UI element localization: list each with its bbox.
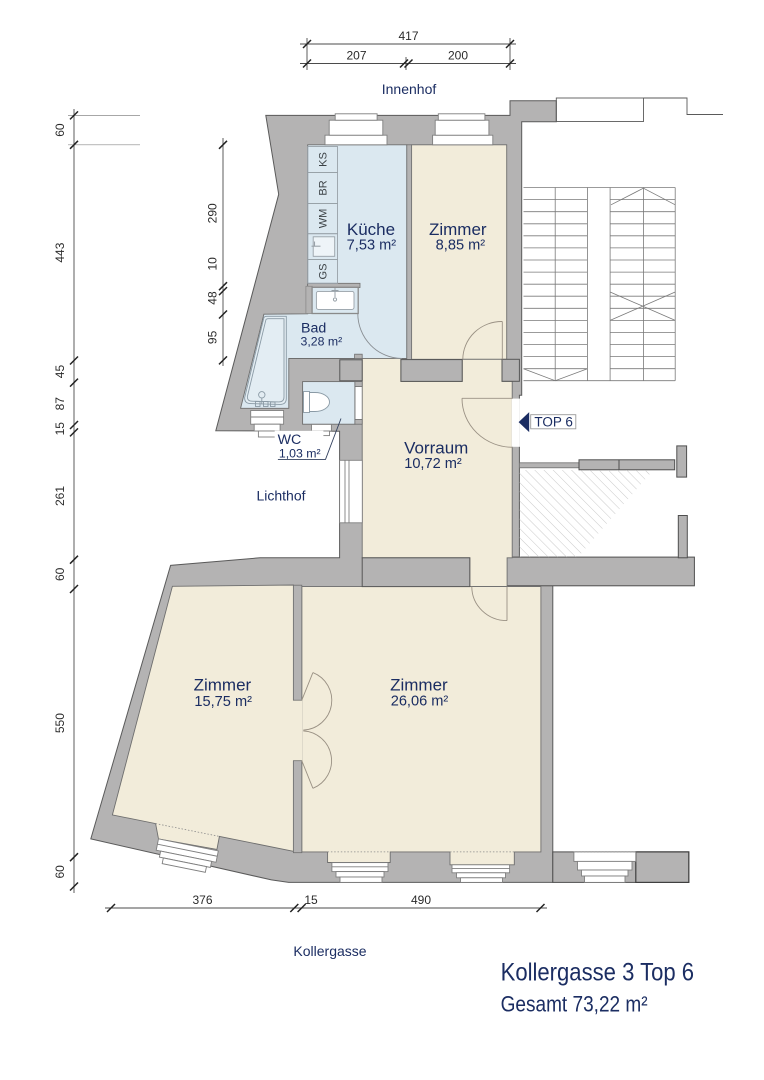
- svg-text:1,03 m²: 1,03 m²: [279, 446, 321, 460]
- svg-text:Küche: Küche: [347, 220, 395, 239]
- svg-text:Lichthof: Lichthof: [256, 488, 305, 504]
- svg-text:48: 48: [206, 291, 220, 305]
- svg-text:7,53 m²: 7,53 m²: [347, 238, 397, 254]
- svg-text:KS: KS: [318, 152, 330, 167]
- svg-text:417: 417: [398, 29, 418, 43]
- svg-text:TOP 6: TOP 6: [534, 414, 573, 429]
- svg-text:Vorraum: Vorraum: [404, 438, 468, 457]
- svg-text:15: 15: [304, 893, 318, 907]
- svg-text:Kollergasse 3 Top 6: Kollergasse 3 Top 6: [501, 959, 694, 987]
- svg-text:Gesamt 73,22 m²: Gesamt 73,22 m²: [501, 992, 648, 1017]
- svg-text:WM: WM: [318, 209, 330, 229]
- svg-text:60: 60: [53, 567, 67, 581]
- svg-text:Innenhof: Innenhof: [382, 81, 437, 97]
- svg-text:GS: GS: [318, 264, 330, 280]
- svg-text:10: 10: [206, 257, 220, 271]
- svg-text:3,28 m²: 3,28 m²: [301, 334, 343, 348]
- svg-text:Zimmer: Zimmer: [390, 675, 448, 694]
- svg-text:45: 45: [53, 365, 67, 379]
- svg-text:60: 60: [53, 123, 67, 137]
- svg-text:15,75 m²: 15,75 m²: [194, 694, 252, 710]
- svg-text:10,72 m²: 10,72 m²: [404, 456, 462, 472]
- svg-text:8,85 m²: 8,85 m²: [436, 237, 486, 253]
- svg-text:207: 207: [346, 49, 366, 63]
- svg-text:200: 200: [448, 49, 468, 63]
- svg-text:BR: BR: [318, 180, 330, 195]
- svg-text:95: 95: [206, 330, 220, 344]
- svg-text:Zimmer: Zimmer: [194, 675, 252, 694]
- svg-text:60: 60: [53, 865, 67, 879]
- svg-text:WC: WC: [278, 432, 302, 448]
- svg-text:376: 376: [192, 893, 212, 907]
- svg-text:290: 290: [206, 203, 220, 223]
- svg-text:490: 490: [411, 893, 431, 907]
- svg-text:26,06 m²: 26,06 m²: [391, 694, 449, 710]
- svg-text:550: 550: [53, 713, 67, 733]
- svg-text:443: 443: [53, 242, 67, 262]
- svg-text:Kollergasse: Kollergasse: [293, 943, 366, 959]
- svg-text:87: 87: [53, 397, 67, 411]
- svg-text:15: 15: [53, 422, 67, 436]
- svg-text:261: 261: [53, 486, 67, 506]
- svg-text:Zimmer: Zimmer: [429, 220, 487, 239]
